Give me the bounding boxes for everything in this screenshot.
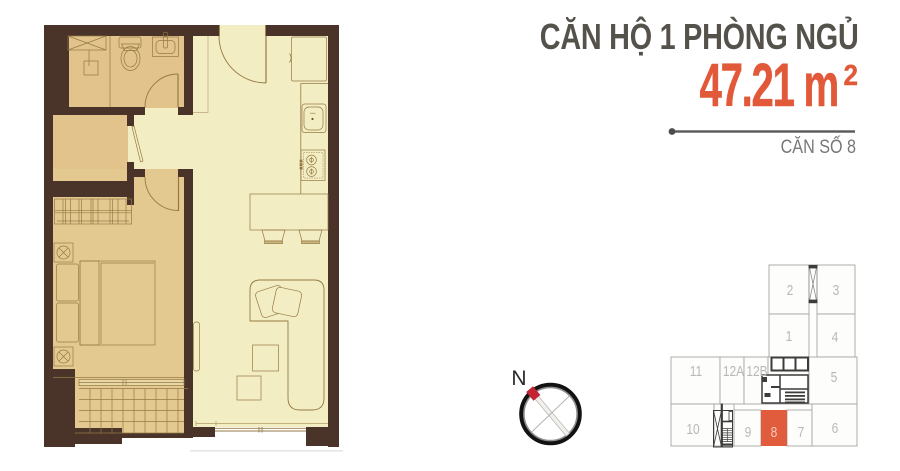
svg-text:8: 8 <box>771 424 778 441</box>
svg-text:12A: 12A <box>723 363 745 380</box>
svg-text:2: 2 <box>787 282 794 299</box>
svg-text:6: 6 <box>832 420 839 437</box>
svg-text:2: 2 <box>843 59 858 92</box>
svg-text:5: 5 <box>831 369 838 386</box>
svg-text:9: 9 <box>745 424 752 441</box>
svg-text:CĂN SỐ 8: CĂN SỐ 8 <box>781 135 857 158</box>
svg-text:1: 1 <box>786 328 793 345</box>
svg-text:3: 3 <box>833 282 840 299</box>
svg-text:11: 11 <box>690 363 702 380</box>
svg-text:47.21 m: 47.21 m <box>700 51 838 119</box>
svg-text:12B: 12B <box>746 363 767 380</box>
svg-text:7: 7 <box>798 424 805 441</box>
svg-text:N: N <box>511 367 526 390</box>
svg-text:10: 10 <box>686 421 700 438</box>
svg-text:4: 4 <box>832 329 839 346</box>
